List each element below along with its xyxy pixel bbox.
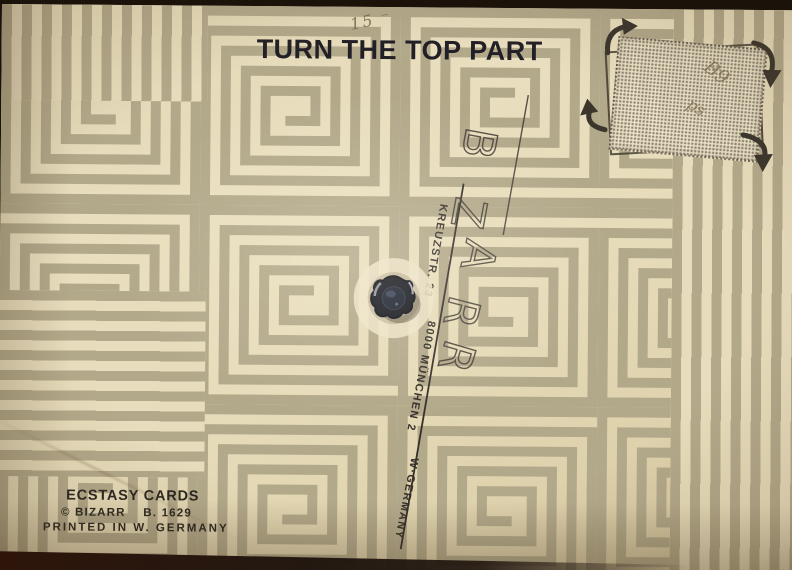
address-city: 8000 MÜNCHEN 2 xyxy=(404,320,438,433)
signature-slash xyxy=(503,95,528,235)
signature-letter: A xyxy=(450,235,506,275)
signature-letter: R xyxy=(432,291,489,333)
signature-letter: Z xyxy=(440,194,496,233)
rivet-fastener xyxy=(353,258,434,339)
rotate-arrow-icon-top-left xyxy=(607,18,637,53)
signature-letter: B xyxy=(451,124,507,163)
rotate-arrow-icon-top-right xyxy=(753,43,781,88)
address-country: W·GERMANY xyxy=(392,457,420,541)
rotate-arrow-icon-bottom-right xyxy=(743,135,773,172)
signature-letter: R xyxy=(427,334,485,378)
rotate-arrow-icon-bottom-left xyxy=(580,99,605,130)
postcard-photo: TURN THE TOP PART 15 ⁻ B9 ps xyxy=(0,0,792,570)
postcard-back: TURN THE TOP PART 15 ⁻ B9 ps xyxy=(0,4,792,570)
